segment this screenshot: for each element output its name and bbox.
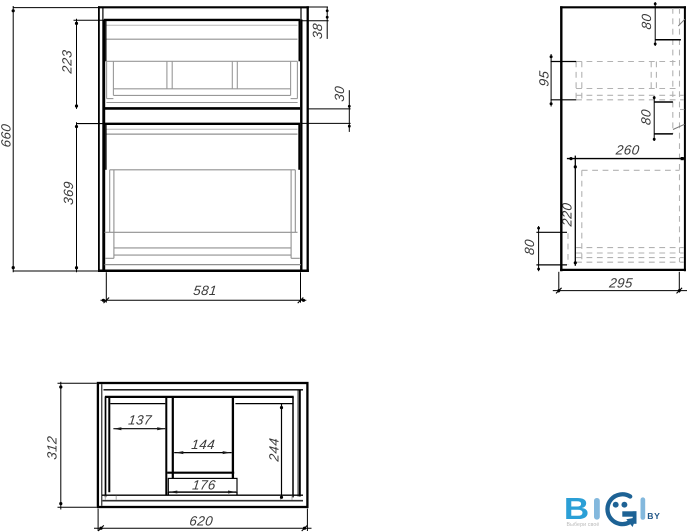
svg-text:581: 581 (193, 283, 218, 298)
svg-text:80: 80 (522, 238, 537, 255)
svg-text:295: 295 (608, 276, 634, 291)
svg-text:Выбери своё: Выбери своё (567, 522, 600, 528)
svg-text:BY: BY (647, 511, 660, 521)
svg-text:620: 620 (189, 513, 214, 528)
svg-text:660: 660 (0, 123, 14, 148)
svg-text:80: 80 (639, 108, 654, 125)
svg-text:369: 369 (61, 180, 76, 205)
svg-text:176: 176 (192, 478, 217, 493)
svg-text:223: 223 (60, 49, 75, 75)
svg-text:80: 80 (639, 13, 654, 30)
svg-text:244: 244 (267, 437, 282, 463)
svg-text:260: 260 (614, 142, 640, 157)
svg-text:220: 220 (560, 202, 575, 228)
svg-text:137: 137 (128, 413, 153, 428)
svg-text:30: 30 (332, 85, 347, 102)
svg-text:38: 38 (310, 22, 325, 39)
svg-text:312: 312 (45, 435, 60, 460)
svg-text:95: 95 (537, 70, 552, 87)
svg-text:144: 144 (191, 437, 216, 452)
